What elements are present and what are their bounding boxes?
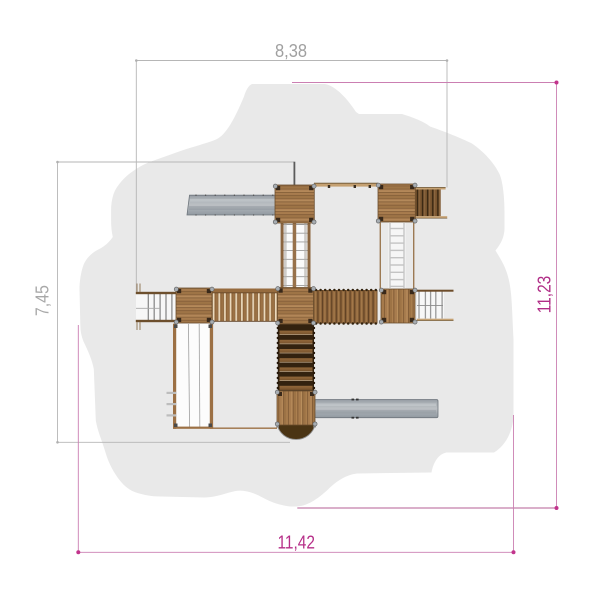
svg-text:8,38: 8,38 — [275, 41, 307, 61]
svg-text:11,23: 11,23 — [533, 276, 554, 314]
svg-text:7,45: 7,45 — [33, 285, 53, 316]
svg-text:11,42: 11,42 — [277, 532, 315, 553]
